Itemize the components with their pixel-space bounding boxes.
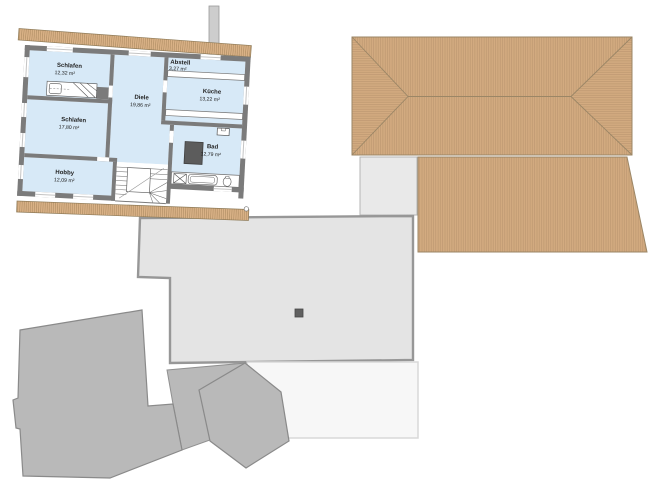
lower-roof [418,157,647,252]
room-area-label: 19,86 m² [130,102,151,109]
room-hobby [22,157,113,196]
site-plan-canvas: Schlafen 12,32 m² Schlafen 17,80 m² Hobb… [0,0,650,489]
bathtub-icon [188,174,217,185]
room-area-label: 12,79 m² [200,151,221,158]
room-label: Hobby [55,170,75,177]
room-area-label: 12,09 m² [54,177,75,184]
room-area-label: 17,80 m² [59,124,80,131]
bed-icon [46,81,97,98]
room-label: Bad [207,144,219,151]
room-area-label: 12,32 m² [54,70,75,77]
downpipe-icon [244,207,249,212]
site-plan: Schlafen 12,32 m² Schlafen 17,80 m² Hobb… [0,0,650,489]
stairs [115,162,168,204]
flat-roof-surface [138,216,413,363]
wc-icon [217,128,229,136]
room-label: Diele [134,95,149,102]
room-label: Küche [203,89,222,96]
hipped-roof [352,37,632,155]
floor-plan: Schlafen 12,32 m² Schlafen 17,80 m² Hobb… [17,45,251,208]
chimney-top-icon [295,309,303,317]
room-area-label: 3,27 m² [169,66,187,73]
flat-roof [138,216,413,363]
upper-terrace-band [360,157,417,215]
room-area-label: 13,22 m² [199,96,220,103]
